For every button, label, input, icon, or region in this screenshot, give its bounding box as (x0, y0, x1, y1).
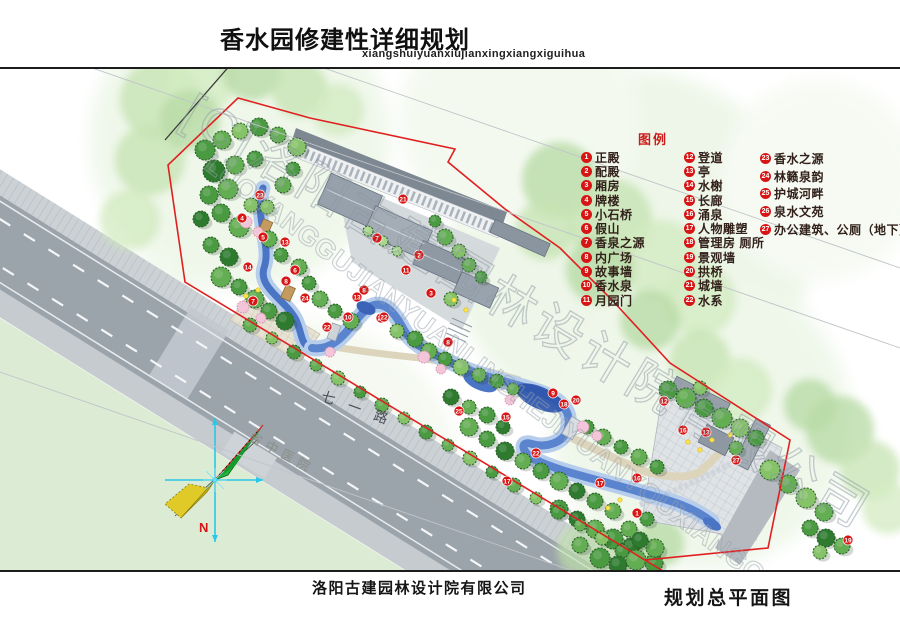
marker-number: 22 (323, 324, 331, 331)
legend-item: 21城墙 (684, 279, 764, 293)
marker-number: 9 (551, 390, 555, 397)
tree-highlight (263, 305, 270, 312)
blossom-tree (436, 364, 446, 374)
legend-item-label: 月园门 (595, 292, 633, 309)
tree-highlight (314, 293, 321, 300)
page-title-pinyin: xiangshuiyuanxiujianxingxiangxiguihua (362, 48, 585, 60)
tree-highlight (498, 422, 504, 428)
legend-number-badge: 11 (581, 295, 592, 306)
tree-highlight (464, 402, 470, 408)
legend-item: 26泉水文苑 (760, 203, 900, 221)
marker-number: 17 (503, 478, 511, 485)
tree-highlight (517, 455, 524, 462)
tree-highlight (279, 314, 287, 322)
legend-item-label: 泉水文苑 (774, 203, 824, 220)
legend-item: 23香水之源 (760, 150, 900, 168)
legend-number-badge: 21 (684, 280, 695, 291)
canopy-blob (784, 379, 836, 431)
tree-highlight (642, 514, 648, 520)
tree-highlight (634, 534, 641, 541)
tree-highlight (233, 281, 240, 288)
legend-number-badge: 9 (581, 266, 592, 277)
legend-number-badge: 14 (684, 180, 695, 191)
marker-number: 17 (596, 480, 604, 487)
legend-item-label: 林籁泉韵 (774, 168, 824, 185)
legend-number-badge: 17 (684, 223, 695, 234)
blossom-tree (325, 347, 335, 357)
tree-highlight (276, 250, 282, 256)
marker-number: 1 (635, 510, 639, 517)
tree-highlight (481, 433, 488, 440)
marker-number: 5 (261, 234, 265, 241)
legend-number-badge: 3 (581, 180, 592, 191)
tree-highlight (481, 409, 488, 416)
tree-highlight (463, 420, 471, 428)
legend-item: 20拱桥 (684, 264, 764, 278)
legend-number-badge: 25 (760, 188, 771, 199)
tree-highlight (223, 250, 231, 258)
legend-item: 11月园门 (581, 293, 645, 307)
legend-number-badge: 13 (684, 166, 695, 177)
legend-item: 14水榭 (684, 179, 764, 193)
marker-number: 7 (251, 298, 255, 305)
flower-dot (244, 294, 248, 298)
tree-highlight (499, 444, 507, 452)
tree-highlight (330, 306, 336, 312)
site-plan-drawing: 2345131468247221013782621211322825159182… (0, 0, 900, 636)
legend-column: 1正殿2配殿3厢房4牌楼5小石桥6假山7香泉之源8内广场9故事墙10香水泉11月… (581, 150, 645, 307)
tree-highlight (623, 523, 630, 530)
blossom-tree (256, 313, 266, 323)
blossom-tree (418, 351, 430, 363)
legend-number-badge: 26 (760, 206, 771, 217)
marker-number: 14 (244, 264, 252, 271)
legend-item: 24林籁泉韵 (760, 168, 900, 186)
top-rule (0, 67, 900, 69)
tree-highlight (445, 391, 452, 398)
tree-highlight (616, 442, 622, 448)
legend-number-badge: 22 (684, 295, 695, 306)
north-label: N (199, 520, 208, 535)
legend-heading: 图例 (638, 129, 668, 148)
marker-number: 22 (532, 450, 540, 457)
legend-number-badge: 16 (684, 209, 695, 220)
legend-number-badge: 1 (581, 152, 592, 163)
legend-item-label: 办公建筑、公厕（地下） (774, 221, 900, 238)
tree-highlight (815, 547, 821, 553)
tree-highlight (612, 558, 620, 566)
legend-number-badge: 12 (684, 152, 695, 163)
legend-item: 19景观墙 (684, 250, 764, 264)
legend-column: 12登道13亭14水榭15长廊16涌泉17人物雕塑18管理房 厕所19景观墙20… (684, 150, 764, 307)
drawing-name: 规划总平面图 (664, 583, 793, 610)
legend-item-label: 水系 (698, 292, 723, 309)
tree-highlight (205, 239, 212, 246)
legend-number-badge: 15 (684, 195, 695, 206)
tree-highlight (836, 540, 843, 547)
marker-number: 3 (429, 290, 433, 297)
legend-column: 23香水之源24林籁泉韵25护城河畔26泉水文苑27办公建筑、公厕（地下） (760, 150, 900, 238)
tree-highlight (593, 551, 602, 560)
tree-highlight (215, 206, 223, 214)
legend-number-badge: 27 (760, 224, 771, 235)
tree-highlight (203, 188, 211, 196)
tree-highlight (535, 465, 542, 472)
tree-highlight (574, 539, 581, 546)
bottom-rule (0, 570, 900, 572)
legend-number-badge: 18 (684, 237, 695, 248)
tree-highlight (589, 495, 596, 502)
legend-number-badge: 5 (581, 209, 592, 220)
marker-number: 20 (572, 397, 580, 404)
marker-number: 24 (301, 295, 309, 302)
tree-highlight (392, 326, 398, 332)
flower-dot (618, 498, 622, 502)
legend-item: 27办公建筑、公厕（地下） (760, 220, 900, 238)
legend-number-badge: 19 (684, 252, 695, 263)
marker-number: 10 (344, 314, 352, 321)
legend-number-badge: 6 (581, 223, 592, 234)
legend-item: 25护城河畔 (760, 185, 900, 203)
tree-highlight (820, 531, 828, 539)
marker-number: 4 (240, 215, 244, 222)
legend-item: 13亭 (684, 164, 764, 178)
legend-item-label: 护城河畔 (774, 185, 824, 202)
marker-number: 13 (353, 294, 361, 301)
legend-number-badge: 20 (684, 266, 695, 277)
tree-highlight (214, 270, 223, 279)
marker-number: 15 (502, 414, 510, 421)
legend-number-badge: 4 (581, 195, 592, 206)
tree-highlight (571, 485, 578, 492)
tree-highlight (553, 474, 561, 482)
legend-item-label: 香水之源 (774, 150, 824, 167)
tree-highlight (195, 213, 202, 220)
marker-number: 6 (293, 267, 297, 274)
tree-highlight (804, 522, 811, 529)
company-name: 洛阳古建园林设计院有限公司 (312, 577, 527, 598)
blossom-tree (237, 301, 249, 313)
legend-number-badge: 2 (581, 166, 592, 177)
canopy-blob (100, 190, 160, 250)
legend-item: 15长廊 (684, 193, 764, 207)
legend-number-badge: 10 (581, 280, 592, 291)
legend-number-badge: 7 (581, 237, 592, 248)
marker-number: 8 (284, 278, 288, 285)
flower-dot (256, 288, 260, 292)
plan-sheet: 2345131468247221013782621211322825159182… (0, 0, 900, 636)
tree-highlight (633, 451, 640, 458)
legend-item: 12登道 (684, 150, 764, 164)
marker-number: 25 (455, 408, 463, 415)
marker-number: 13 (281, 239, 289, 246)
legend-number-badge: 23 (760, 153, 771, 164)
marker-number: 22 (380, 314, 388, 321)
legend-number-badge: 8 (581, 252, 592, 263)
tree-highlight (304, 278, 310, 284)
legend-number-badge: 24 (760, 171, 771, 182)
flower-dot (606, 506, 610, 510)
tree-highlight (652, 462, 658, 468)
legend-item: 22水系 (684, 293, 764, 307)
